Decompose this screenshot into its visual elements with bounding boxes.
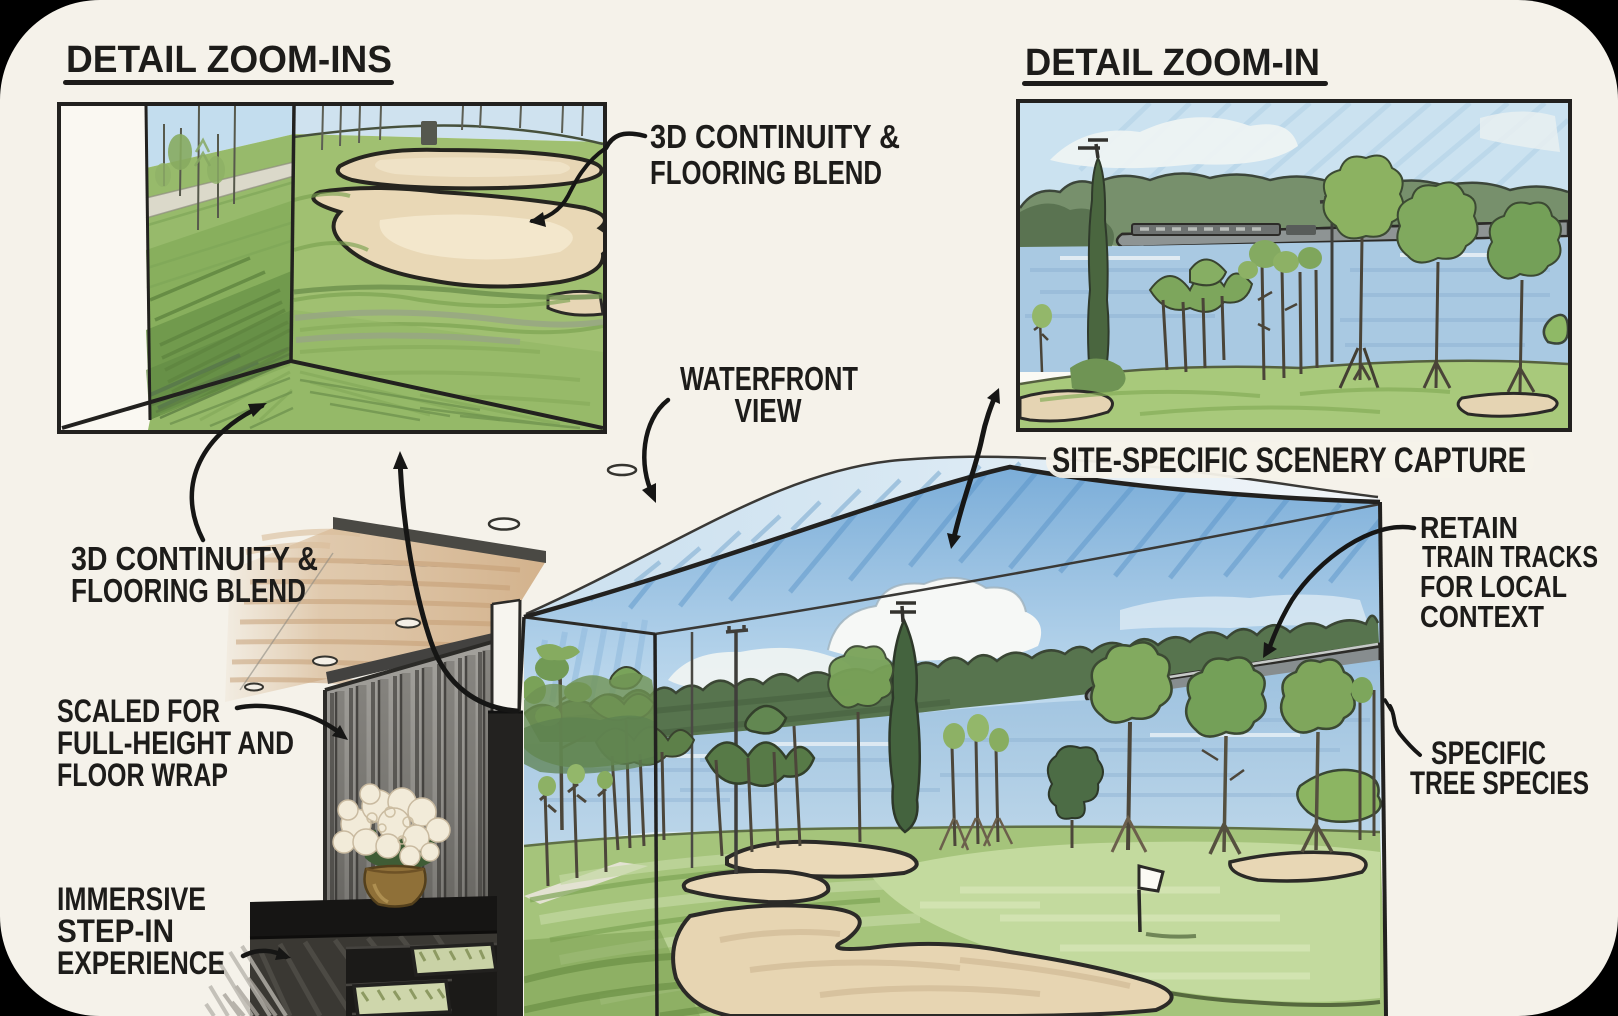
svg-text:STEP-IN: STEP-IN (57, 913, 174, 949)
svg-text:TREE SPECIES: TREE SPECIES (1410, 765, 1589, 801)
svg-text:VIEW: VIEW (735, 392, 803, 429)
svg-text:DETAIL ZOOM-INS: DETAIL ZOOM-INS (66, 39, 392, 81)
svg-text:EXPERIENCE: EXPERIENCE (57, 945, 225, 981)
svg-text:FLOOR WRAP: FLOOR WRAP (57, 757, 228, 793)
svg-text:FULL-HEIGHT AND: FULL-HEIGHT AND (57, 725, 294, 761)
svg-text:FLOORING BLEND: FLOORING BLEND (650, 154, 882, 191)
svg-text:IMMERSIVE: IMMERSIVE (57, 881, 206, 917)
svg-text:FLOORING BLEND: FLOORING BLEND (71, 572, 306, 609)
svg-text:CONTEXT: CONTEXT (1420, 599, 1544, 634)
svg-text:SCALED FOR: SCALED FOR (57, 693, 220, 729)
svg-text:DETAIL ZOOM-IN: DETAIL ZOOM-IN (1025, 42, 1320, 84)
svg-text:3D CONTINUITY &: 3D CONTINUITY & (650, 118, 900, 155)
svg-text:SITE-SPECIFIC SCENERY CAPTURE: SITE-SPECIFIC SCENERY CAPTURE (1052, 441, 1526, 480)
